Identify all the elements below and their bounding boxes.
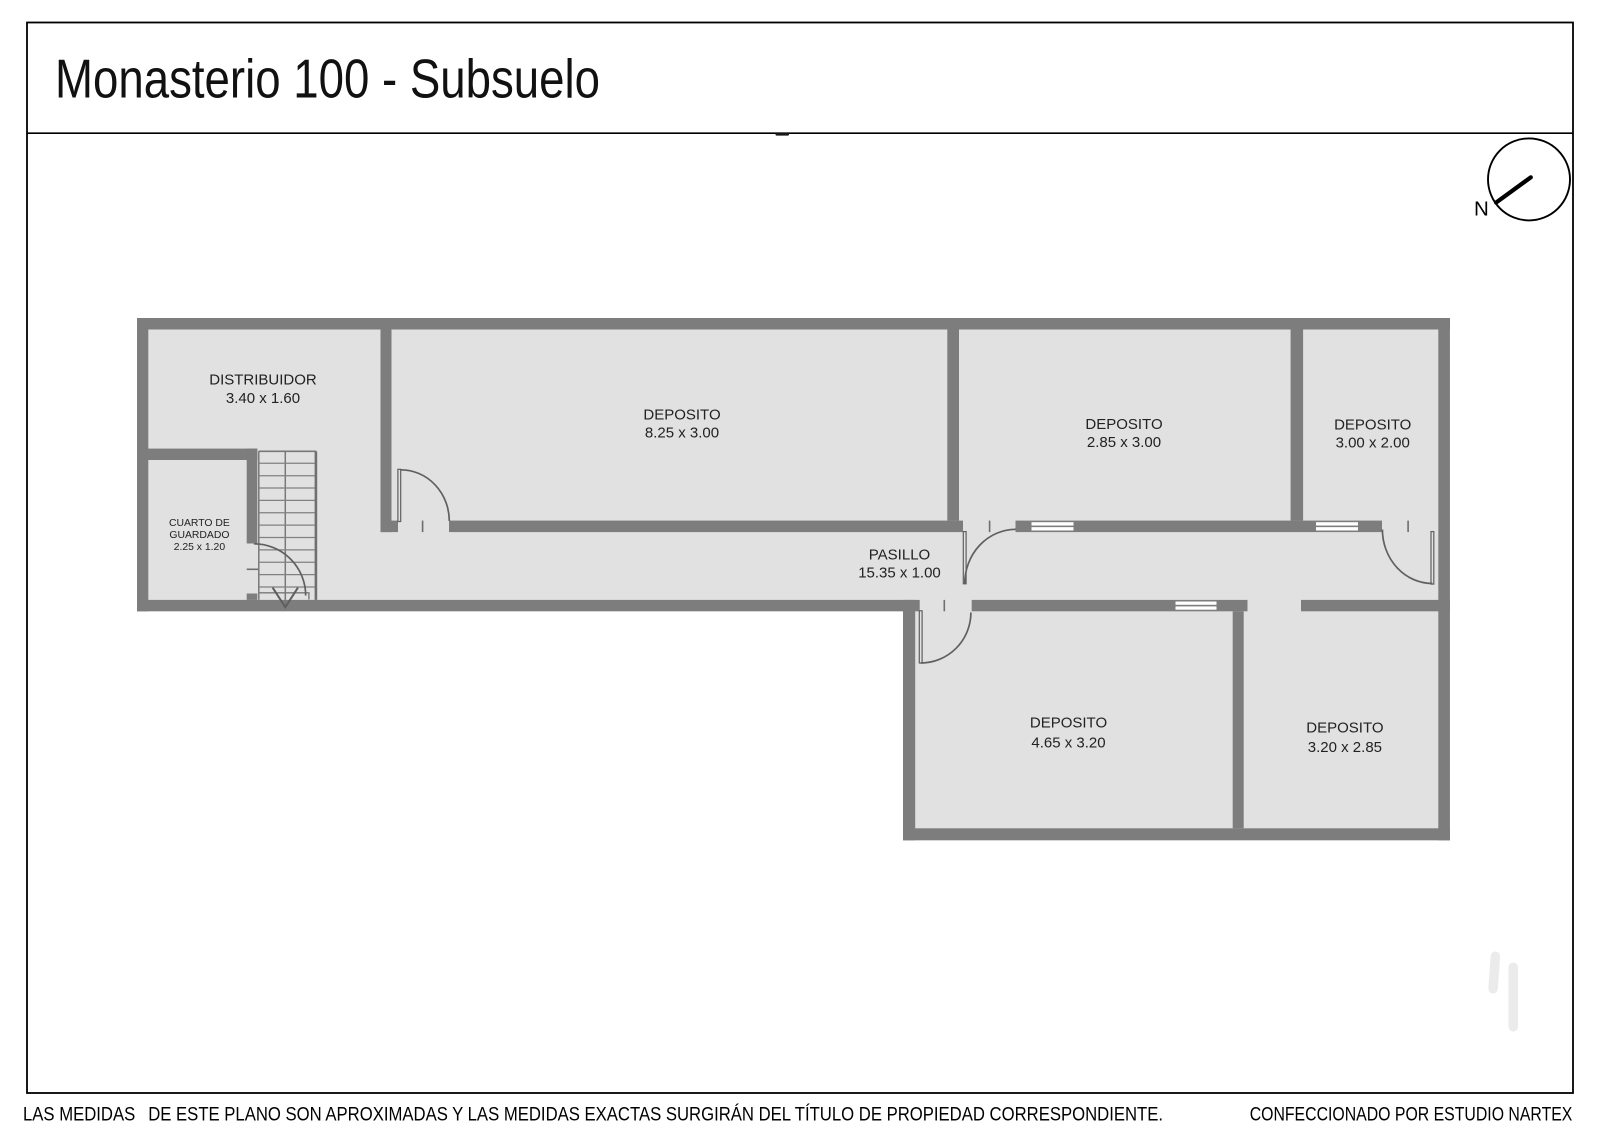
svg-text:2.85 x 3.00: 2.85 x 3.00 [1087,434,1161,451]
svg-text:LAS MEDIDAS DE ESTE PLANO SON: LAS MEDIDAS DE ESTE PLANO SON APROXIMADA… [23,1105,1163,1126]
svg-text:DISTRIBUIDOR: DISTRIBUIDOR [209,371,317,388]
svg-text:DEPOSITO: DEPOSITO [1030,715,1107,732]
svg-text:PASILLO: PASILLO [869,546,930,563]
svg-text:3.40 x 1.60: 3.40 x 1.60 [226,390,300,407]
svg-text:DEPOSITO: DEPOSITO [1334,417,1411,434]
svg-text:DEPOSITO: DEPOSITO [1306,720,1383,737]
svg-text:N: N [1474,197,1489,220]
svg-text:GUARDADO: GUARDADO [169,530,229,541]
svg-text:8.25 x 3.00: 8.25 x 3.00 [645,425,719,442]
svg-text:3.00 x 2.00: 3.00 x 2.00 [1336,435,1410,452]
svg-text:CUARTO DE: CUARTO DE [169,518,230,529]
svg-text:4.65 x 3.20: 4.65 x 3.20 [1031,734,1105,751]
svg-text:15.35 x 1.00: 15.35 x 1.00 [858,565,941,582]
svg-text:2.25 x 1.20: 2.25 x 1.20 [174,542,226,553]
svg-text:CONFECCIONADO POR ESTUDIO NART: CONFECCIONADO POR ESTUDIO NARTEX [1250,1105,1573,1126]
svg-text:DEPOSITO: DEPOSITO [643,407,720,424]
svg-text:DEPOSITO: DEPOSITO [1085,416,1162,433]
svg-text:Monasterio 100 - Subsuelo: Monasterio 100 - Subsuelo [55,48,600,110]
svg-text:3.20 x 2.85: 3.20 x 2.85 [1308,739,1382,756]
